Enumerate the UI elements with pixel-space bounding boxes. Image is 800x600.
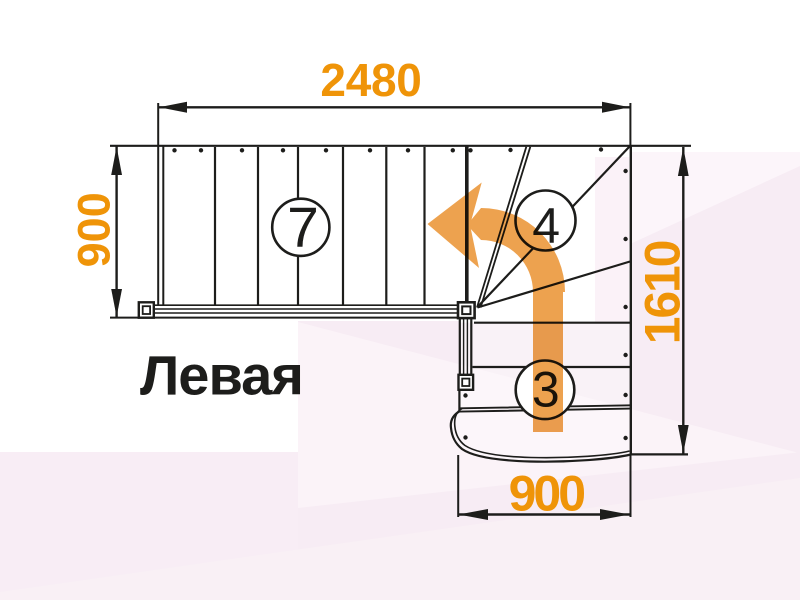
svg-text:900: 900 [509,465,585,521]
svg-text:1610: 1610 [635,241,691,344]
svg-text:900: 900 [69,192,120,267]
svg-text:Левая: Левая [140,344,303,407]
svg-text:2480: 2480 [320,54,421,106]
svg-text:7: 7 [287,196,319,260]
